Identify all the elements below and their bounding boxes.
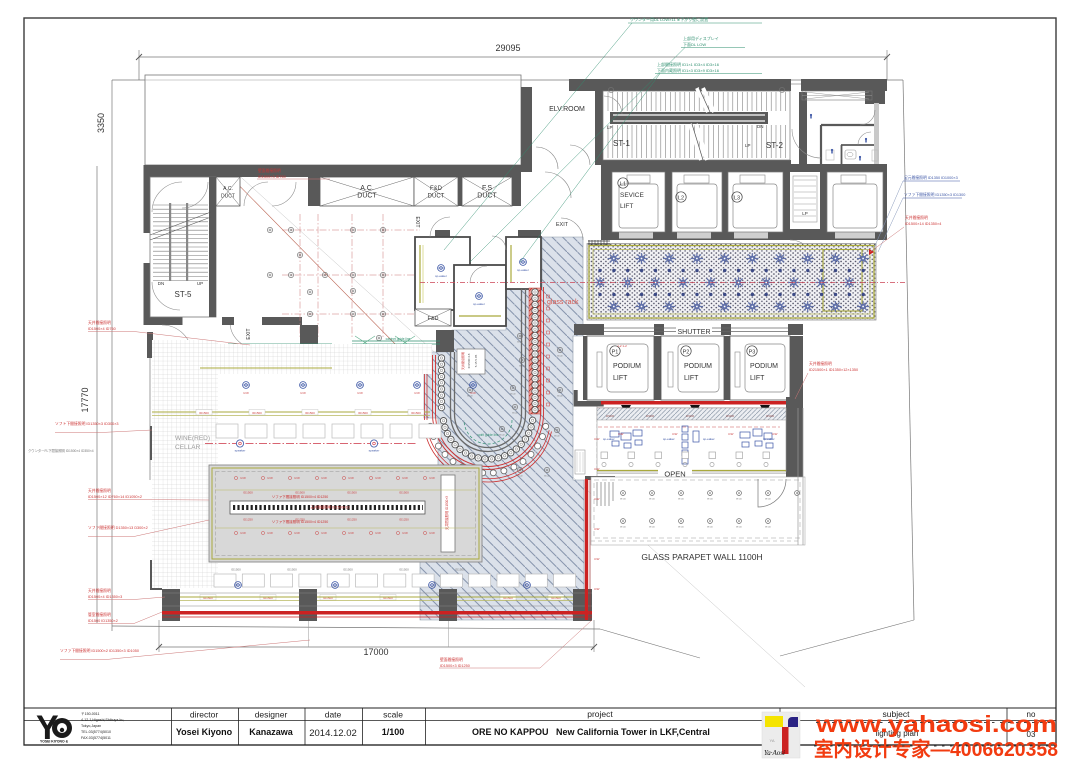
svg-text:天井間接照明 ID1500×10: 天井間接照明 ID1500×10 (310, 505, 349, 510)
svg-text:sp-eaker: sp-eaker (663, 437, 675, 441)
svg-text:U/W: U/W (429, 531, 435, 535)
svg-text:B.CD: B.CD (554, 436, 560, 438)
svg-text:B.CD: B.CD (544, 476, 550, 478)
svg-text:U/W: U/W (294, 476, 300, 480)
svg-text:U/W: U/W (240, 476, 246, 480)
svg-text:PODIUM: PODIUM (750, 363, 778, 370)
svg-text:director: director (190, 710, 219, 720)
svg-text:天井間接照明: 天井間接照明 (905, 215, 928, 220)
svg-text:U/W: U/W (375, 531, 381, 535)
svg-text:ID1500×3 ID760: ID1500×3 ID760 (258, 175, 286, 179)
svg-text:1-2 1-2: 1-2 1-2 (617, 344, 627, 348)
svg-text:B.CD: B.CD (512, 413, 518, 415)
svg-text:足元間接照明 ID1350 ID1000×3: 足元間接照明 ID1350 ID1000×3 (904, 175, 958, 180)
svg-text:壁面間接照明: 壁面間接照明 (440, 657, 463, 662)
svg-text:sp-eaker: sp-eaker (703, 437, 715, 441)
svg-text:クウンターFL下間接照明 ID1500×4 ID350×4: クウンターFL下間接照明 ID1500×4 ID350×4 (28, 448, 94, 453)
svg-text:クウンター用DL LOW×11 ※下がり壁に設置: クウンター用DL LOW×11 ※下がり壁に設置 (630, 16, 708, 22)
svg-text:LIFT: LIFT (613, 375, 628, 382)
svg-text:ID1500: ID1500 (287, 568, 297, 572)
svg-text:U/W: U/W (267, 531, 273, 535)
svg-text:ID1500: ID1500 (455, 568, 465, 572)
svg-text:TEL.03(5774)5010: TEL.03(5774)5010 (81, 730, 111, 734)
svg-text:ソファ下間接照明 ID1500×2 ID1350×3 ID1: ソファ下間接照明 ID1500×2 ID1350×3 ID1050 (60, 648, 139, 653)
svg-text:W1100: W1100 (766, 414, 775, 418)
svg-text:speaker: speaker (369, 449, 380, 453)
svg-text:4-12-1,Higashi,Shibuya-ku,: 4-12-1,Higashi,Shibuya-ku, (81, 718, 124, 722)
svg-text:ソファ間接照明 D1350×13 D300×2: ソファ間接照明 D1350×13 D300×2 (88, 525, 148, 530)
svg-text:ID1500: ID1500 (199, 411, 209, 415)
svg-text:天井間接照明: 天井間接照明 (460, 352, 465, 370)
svg-text:1/100: 1/100 (382, 727, 405, 737)
svg-text:B.CD: B.CD (467, 396, 473, 398)
svg-text:P2: P2 (683, 350, 690, 356)
svg-text:ID1500 ID1350×2: ID1500 ID1350×2 (88, 619, 118, 623)
svg-text:DN: DN (757, 124, 764, 129)
svg-text:PODIUM: PODIUM (613, 363, 641, 370)
svg-text:ST-1: ST-1 (613, 139, 630, 148)
svg-text:U/W: U/W (728, 432, 734, 436)
svg-text:U/W: U/W (348, 531, 354, 535)
svg-text:ID1500: ID1500 (358, 411, 368, 415)
svg-text:天井間接照明: 天井間接照明 (88, 320, 111, 325)
svg-text:ID1500: ID1500 (343, 568, 353, 572)
svg-text:sp-eaker: sp-eaker (435, 274, 447, 278)
svg-text:ソフト下間接照明 ID1350×3 ID300×3: ソフト下間接照明 ID1350×3 ID300×3 (55, 421, 119, 426)
svg-text:date: date (325, 710, 342, 720)
svg-text:〒150-0011: 〒150-0011 (81, 712, 100, 716)
svg-text:sp-eaker: sp-eaker (473, 302, 485, 306)
svg-text:SHUTTER: SHUTTER (677, 329, 710, 336)
svg-text:ID1500: ID1500 (243, 491, 253, 495)
svg-text:W1100: W1100 (726, 414, 735, 418)
svg-text:U/W: U/W (594, 557, 600, 561)
svg-text:5.15 5.05: 5.15 5.05 (474, 354, 478, 367)
svg-text:ID1500: ID1500 (551, 596, 561, 600)
svg-text:2014.12.02: 2014.12.02 (309, 728, 357, 739)
svg-text:Tokyo,Japan: Tokyo,Japan (81, 724, 101, 728)
svg-text:U/W: U/W (243, 391, 249, 395)
svg-text:ID1500: ID1500 (503, 596, 513, 600)
svg-text:W.CD: W.CD (707, 499, 713, 501)
svg-text:sp-eaker: sp-eaker (763, 437, 775, 441)
svg-text:F&D: F&D (428, 316, 439, 322)
svg-text:ソファ下間接照明 ID1500×4 ID1250: ソファ下間接照明 ID1500×4 ID1250 (272, 494, 329, 499)
svg-text:W.CD: W.CD (649, 499, 655, 501)
svg-text:WINE(RED): WINE(RED) (175, 435, 210, 442)
svg-text:W.CD: W.CD (707, 527, 713, 529)
svg-text:天井間接照明 ID1500×3: 天井間接照明 ID1500×3 (444, 496, 449, 530)
svg-text:ID1500: ID1500 (399, 568, 409, 572)
svg-text:ID1500: ID1500 (399, 491, 409, 495)
svg-text:L2: L2 (678, 196, 684, 202)
svg-text:U/W: U/W (402, 531, 408, 535)
svg-text:spirit guide line: spirit guide line (477, 433, 498, 437)
svg-text:L3: L3 (734, 196, 740, 202)
svg-text:LIFT: LIFT (620, 203, 633, 210)
svg-text:U/W: U/W (594, 437, 600, 441)
svg-text:ID1500: ID1500 (347, 491, 357, 495)
svg-text:Kanazawa: Kanazawa (249, 727, 294, 737)
svg-text:ID1500: ID1500 (305, 411, 315, 415)
svg-text:www.yahaosi.com: www.yahaosi.com (815, 711, 1057, 737)
svg-text:DN: DN (158, 281, 165, 286)
svg-text:glass rack: glass rack (547, 299, 579, 306)
svg-text:EXIT: EXIT (414, 216, 420, 227)
svg-text:EXIT: EXIT (246, 328, 252, 339)
svg-text:U/W: U/W (348, 476, 354, 480)
svg-text:A.C.: A.C. (223, 186, 233, 192)
svg-text:管室間接照明: 管室間接照明 (88, 612, 111, 617)
svg-text:B.CD: B.CD (499, 435, 505, 437)
svg-text:U/W: U/W (594, 467, 600, 471)
svg-text:U/W: U/W (618, 432, 624, 436)
svg-text:LP: LP (607, 125, 613, 130)
svg-text:W.CD: W.CD (736, 527, 742, 529)
svg-text:ID1500×18: ID1500×18 (467, 353, 471, 368)
svg-text:LP: LP (745, 143, 751, 148)
svg-text:下面DL LOW: 下面DL LOW (683, 42, 706, 47)
svg-text:ID1500×12 ID760×14 ID1050×2: ID1500×12 ID760×14 ID1050×2 (88, 495, 142, 499)
svg-text:ID1500: ID1500 (231, 568, 241, 572)
svg-text:ID1500: ID1500 (323, 596, 333, 600)
svg-text:PODIUM: PODIUM (684, 363, 712, 370)
svg-text:17000: 17000 (363, 647, 388, 657)
svg-text:ID1500×14 ID1350×4: ID1500×14 ID1350×4 (905, 222, 941, 226)
svg-text:W.CD: W.CD (620, 499, 626, 501)
svg-text:ソファ下間接照明 ID1350×3 ID1300: ソファ下間接照明 ID1350×3 ID1300 (904, 192, 965, 197)
svg-text:DUCT: DUCT (221, 194, 235, 200)
svg-text:ST-5: ST-5 (175, 290, 192, 299)
svg-text:天井間接照明: 天井間接照明 (88, 488, 111, 493)
svg-text:U/W: U/W (240, 531, 246, 535)
svg-text:ID1500: ID1500 (263, 596, 273, 600)
svg-text:天井間接照明: 天井間接照明 (809, 361, 832, 366)
svg-text:B.CD: B.CD (517, 342, 523, 344)
svg-text:B.CD: B.CD (510, 394, 516, 396)
svg-text:B.CD: B.CD (557, 396, 563, 398)
svg-text:B.CD: B.CD (519, 366, 525, 368)
svg-text:U/W: U/W (300, 391, 306, 395)
svg-text:cabinet guide line: cabinet guide line (386, 337, 411, 341)
svg-text:ID1500: ID1500 (252, 411, 262, 415)
svg-text:U/W: U/W (321, 476, 327, 480)
svg-text:sp-eaker: sp-eaker (603, 437, 615, 441)
svg-text:L1: L1 (620, 182, 626, 188)
svg-text:ID1250: ID1250 (399, 518, 409, 522)
svg-text:壁面間接照明: 壁面間接照明 (258, 168, 281, 173)
svg-text:F.S: F.S (482, 185, 492, 192)
svg-text:ID1250: ID1250 (243, 518, 253, 522)
svg-text:project: project (587, 709, 613, 719)
svg-text:U/W: U/W (672, 432, 678, 436)
svg-text:U/W: U/W (594, 527, 600, 531)
svg-text:U/W: U/W (772, 432, 778, 436)
svg-text:W1100: W1100 (606, 414, 615, 418)
svg-text:W.CD: W.CD (765, 527, 771, 529)
svg-text:U/W: U/W (321, 531, 327, 535)
svg-text:Ya·Aosi: Ya·Aosi (764, 749, 785, 757)
svg-text:P3: P3 (749, 350, 756, 356)
svg-text:ST-2: ST-2 (766, 141, 783, 150)
svg-text:上部用ディスプレイ: 上部用ディスプレイ (683, 35, 719, 41)
svg-text:ID1500: ID1500 (411, 411, 421, 415)
svg-text:W.CD: W.CD (649, 527, 655, 529)
svg-text:ID1250: ID1250 (295, 518, 305, 522)
svg-text:W.CD: W.CD (736, 499, 742, 501)
svg-text:YA: YA (769, 738, 774, 743)
svg-text:W.CD: W.CD (765, 499, 771, 501)
svg-text:W1100: W1100 (646, 414, 655, 418)
svg-text:P1: P1 (612, 350, 619, 356)
svg-text:YOSEI KIYONO &: YOSEI KIYONO & (40, 740, 69, 744)
svg-text:FAX.03(5774)5011: FAX.03(5774)5011 (81, 736, 111, 740)
svg-text:designer: designer (255, 710, 288, 720)
svg-text:ELV.ROOM: ELV.ROOM (549, 106, 585, 113)
svg-text:U/W: U/W (267, 476, 273, 480)
svg-text:Yosei Kiyono: Yosei Kiyono (176, 727, 233, 737)
svg-text:W1100: W1100 (686, 414, 695, 418)
svg-text:下面内蔵照明 ID1×3 ID3×9 ID3×16: 下面内蔵照明 ID1×3 ID3×9 ID3×16 (657, 67, 720, 73)
svg-text:U/W: U/W (375, 476, 381, 480)
svg-text:ID1250: ID1250 (347, 518, 357, 522)
svg-text:GLASS PARAPET WALL 1100H: GLASS PARAPET WALL 1100H (641, 552, 762, 562)
svg-text:ID1500: ID1500 (203, 596, 213, 600)
svg-text:U/W: U/W (414, 391, 420, 395)
svg-text:speaker: speaker (235, 449, 246, 453)
svg-text:W.CD: W.CD (620, 527, 626, 529)
svg-text:ID1500×3 ID1250: ID1500×3 ID1250 (440, 664, 470, 668)
svg-text:B.CD: B.CD (517, 476, 523, 478)
svg-text:DUCT: DUCT (428, 194, 445, 200)
svg-text:W.CD: W.CD (678, 527, 684, 529)
svg-text:W.CD: W.CD (678, 499, 684, 501)
svg-text:U/W: U/W (594, 497, 600, 501)
svg-text:LP: LP (802, 211, 808, 216)
svg-text:ID1500: ID1500 (295, 491, 305, 495)
svg-text:ORE NO KAPPOU New California: ORE NO KAPPOU New California Tower in LK… (472, 727, 710, 737)
svg-text:CELLAR: CELLAR (175, 444, 201, 451)
svg-text:SEVICE: SEVICE (620, 192, 645, 199)
svg-text:ID1500×4 ID760: ID1500×4 ID760 (88, 327, 116, 331)
svg-text:EXIT: EXIT (556, 222, 569, 228)
svg-text:ID1500×4 ID1350×3: ID1500×4 ID1350×3 (88, 595, 122, 599)
svg-text:DUCT: DUCT (357, 193, 377, 200)
svg-text:DUCT: DUCT (477, 193, 497, 200)
svg-text:室内设计专家—4006620358: 室内设计专家—4006620358 (814, 737, 1058, 761)
svg-text:LIFT: LIFT (684, 375, 699, 382)
svg-text:天井間接照明: 天井間接照明 (88, 588, 111, 593)
svg-text:U/W: U/W (594, 587, 600, 591)
svg-text:B.CD: B.CD (557, 356, 563, 358)
svg-text:3350: 3350 (96, 113, 106, 133)
svg-text:scale: scale (383, 710, 403, 720)
svg-text:sp-eaker: sp-eaker (517, 268, 529, 272)
svg-text:U/W: U/W (429, 476, 435, 480)
svg-text:F&D: F&D (430, 186, 443, 192)
svg-text:29095: 29095 (495, 43, 520, 53)
svg-text:ID21500×1 ID1350×12×1350: ID21500×1 ID1350×12×1350 (809, 368, 858, 372)
svg-text:A.C.: A.C. (360, 185, 374, 192)
svg-text:U/W: U/W (470, 391, 476, 395)
svg-text:U/W: U/W (294, 531, 300, 535)
svg-text:U/W: U/W (402, 476, 408, 480)
svg-text:ID1500: ID1500 (383, 596, 393, 600)
svg-text:UP: UP (197, 281, 203, 286)
svg-text:LIFT: LIFT (750, 375, 765, 382)
svg-text:U/W: U/W (357, 391, 363, 395)
svg-text:17770: 17770 (80, 387, 90, 412)
